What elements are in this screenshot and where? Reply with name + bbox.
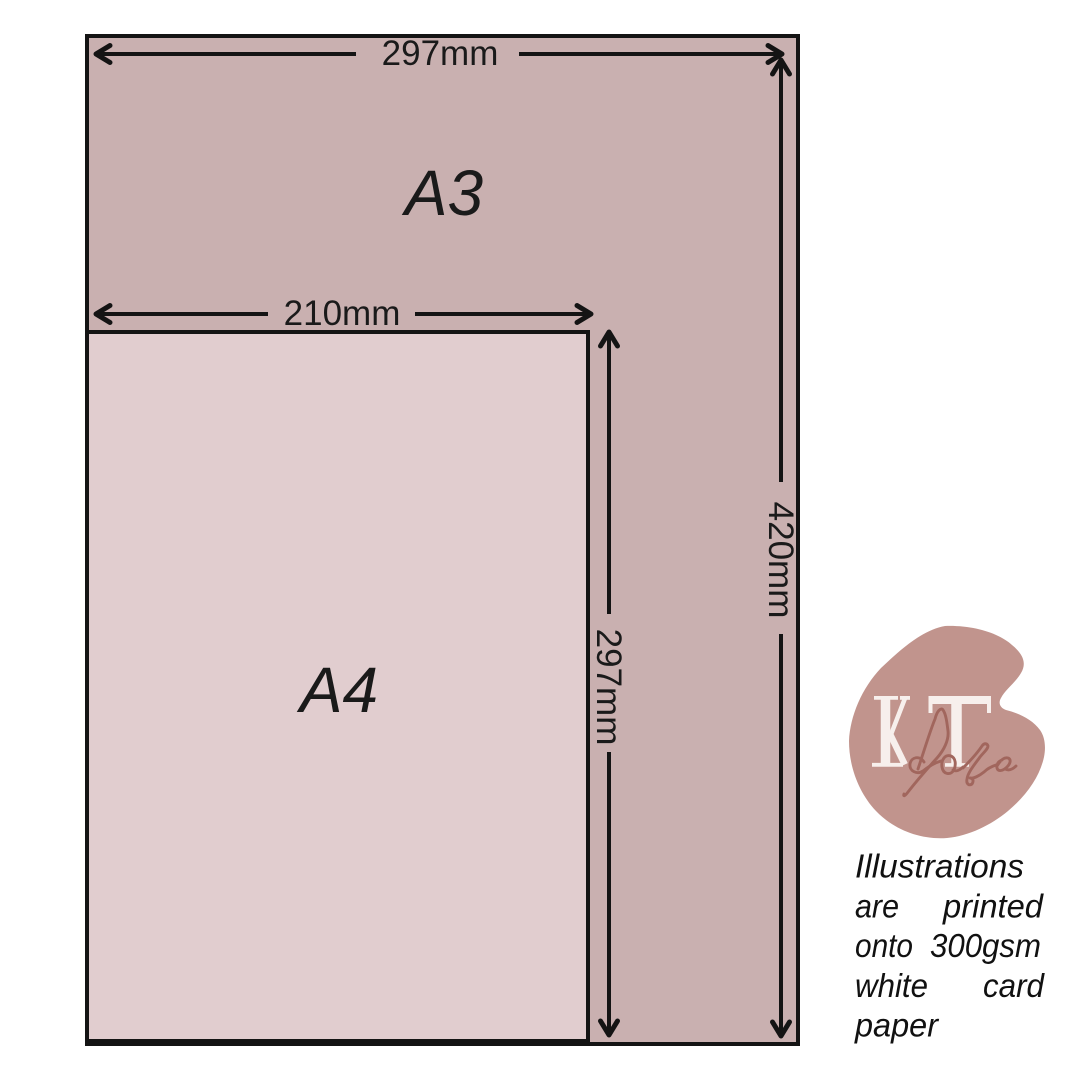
svg-text:A4: A4 xyxy=(296,654,378,726)
svg-text:300gsm: 300gsm xyxy=(930,927,1041,964)
svg-text:420mm: 420mm xyxy=(761,502,800,619)
svg-text:297mm: 297mm xyxy=(589,629,628,746)
svg-text:Illustrations: Illustrations xyxy=(855,848,1024,885)
svg-text:are: are xyxy=(855,887,899,924)
svg-text:onto: onto xyxy=(855,927,913,964)
svg-text:297mm: 297mm xyxy=(382,34,499,73)
svg-text:210mm: 210mm xyxy=(284,294,401,333)
svg-text:white: white xyxy=(855,967,928,1004)
svg-text:printed: printed xyxy=(942,887,1045,924)
svg-text:A3: A3 xyxy=(401,157,484,229)
svg-text:paper: paper xyxy=(854,1007,940,1044)
svg-text:card: card xyxy=(983,967,1046,1004)
